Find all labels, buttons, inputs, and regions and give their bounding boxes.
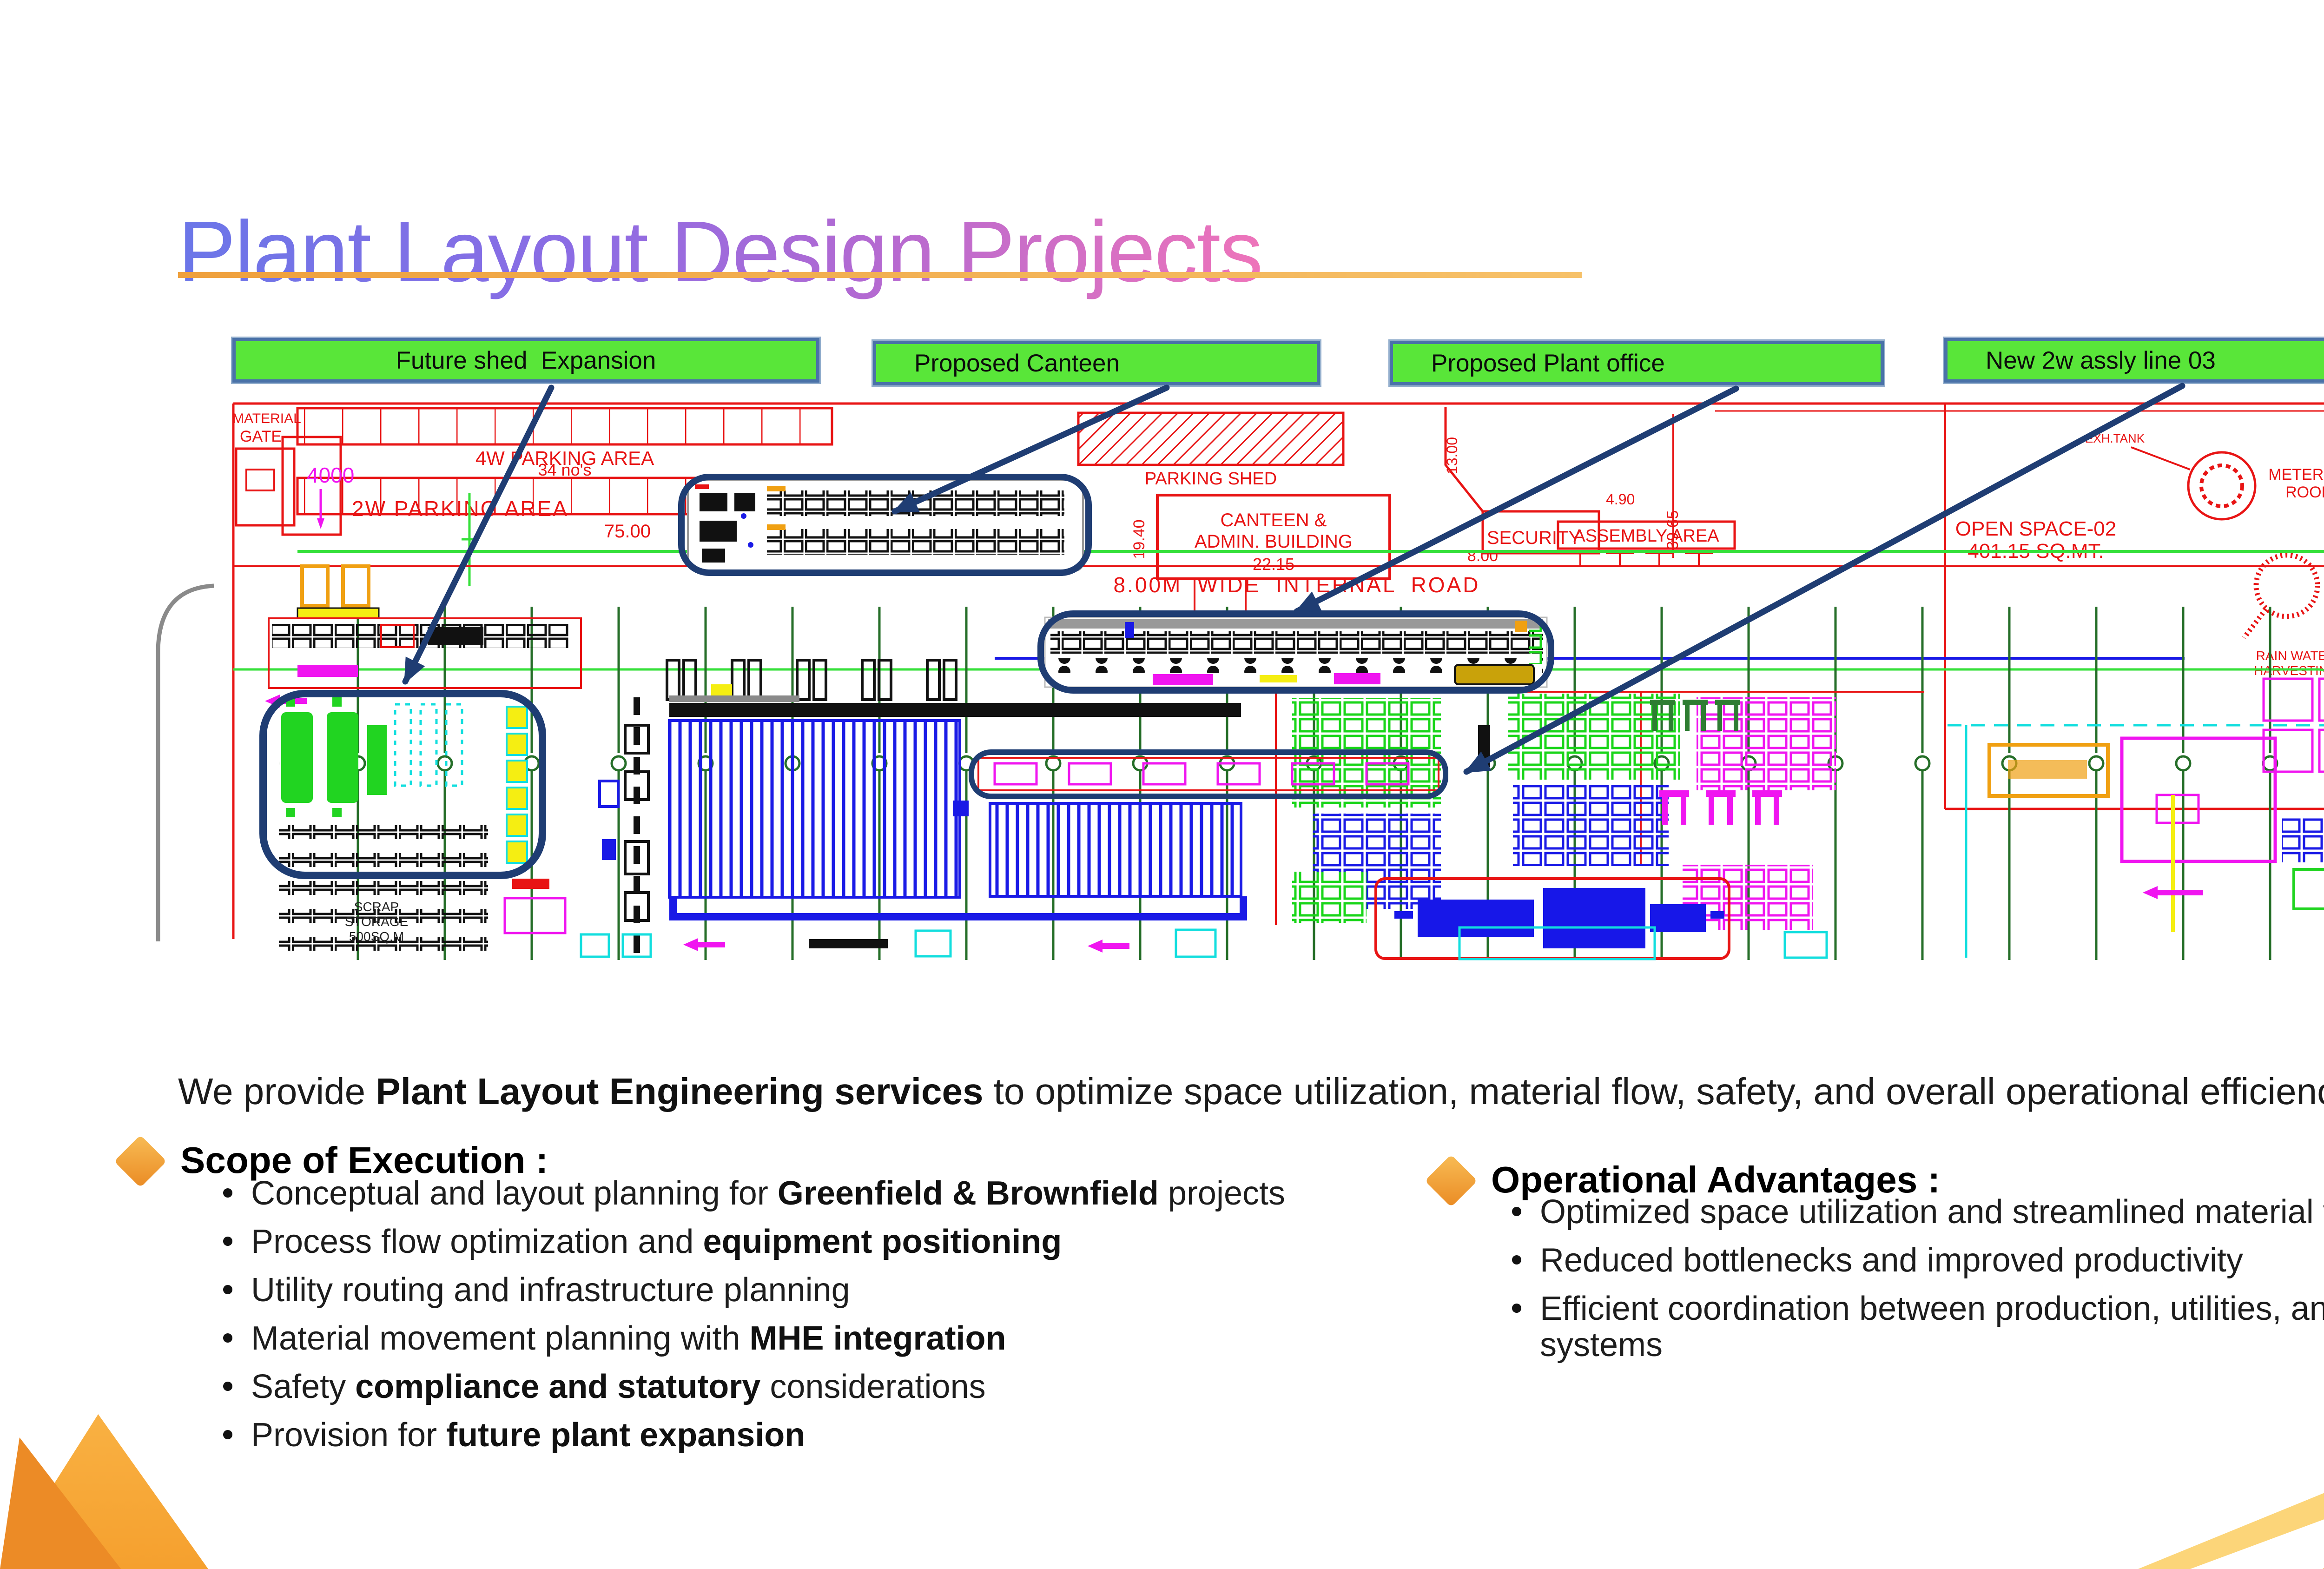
dim-490: 4.90 xyxy=(1606,491,1635,508)
metering-label-1: METERING xyxy=(2268,466,2324,483)
dim-1300: 13.00 xyxy=(1444,437,1460,474)
list-item: Optimized space utilization and streamli… xyxy=(1512,1194,2324,1230)
scrap-label-1: SCRAP xyxy=(354,900,399,914)
bullet-bold: future plant expansion xyxy=(446,1417,805,1454)
callout-proposed-canteen: Proposed Canteen xyxy=(873,341,1320,385)
yellow-bit xyxy=(711,684,732,696)
advantages-bullet-list: Optimized space utilization and streamli… xyxy=(1512,1194,2324,1375)
dim-75: 75.00 xyxy=(604,521,651,542)
intro-bold: Plant Layout Engineering services xyxy=(376,1071,983,1112)
shed-detail xyxy=(688,480,1083,571)
bullet-dot-icon xyxy=(223,1382,232,1391)
bullet-bold: equipment positioning xyxy=(703,1223,1062,1260)
diamond-icon xyxy=(114,1135,166,1187)
dim-2215: 22.15 xyxy=(1253,555,1294,574)
canteen-label-1: CANTEEN & xyxy=(1221,510,1327,530)
list-item: Conceptual and layout planning for Green… xyxy=(223,1175,1534,1212)
bullet-text: Utility routing and infrastructure plann… xyxy=(251,1271,850,1309)
bullet-dot-icon xyxy=(223,1430,232,1439)
line-detail xyxy=(1045,617,1547,687)
list-item: Reduced bottlenecks and improved product… xyxy=(1512,1242,2324,1278)
assembly-label: ASSEMBLY AREA xyxy=(1573,526,1719,546)
bullet-dot-icon xyxy=(223,1285,232,1294)
intro-text: We provide Plant Layout Engineering serv… xyxy=(178,1070,2324,1113)
callout-label: Future shed Expansion xyxy=(396,346,656,375)
bullet-dot-icon xyxy=(223,1237,232,1246)
bullet-bold: MHE integration xyxy=(750,1320,1006,1357)
list-item: Process flow optimization and equipment … xyxy=(223,1224,1534,1260)
bullet-text: Safety xyxy=(251,1368,355,1405)
open-space-label-1: OPEN SPACE-02 xyxy=(1955,517,2116,540)
security-label: SECURITY xyxy=(1487,528,1581,548)
bullet-text: Optimized space utilization and streamli… xyxy=(1540,1194,2324,1230)
page-title: Plant Layout Design Projects xyxy=(178,202,1262,301)
parking-shed: PARKING SHED xyxy=(1078,413,1343,489)
assembly-area: ASSEMBLY AREA xyxy=(1558,522,1735,565)
callout-proposed-plant-office: Proposed Plant office xyxy=(1390,341,1884,385)
list-item: Provision for future plant expansion xyxy=(223,1417,1534,1453)
callout-label: Proposed Plant office xyxy=(1431,349,1665,377)
callout-future-shed: Future shed Expansion xyxy=(232,338,819,383)
dim-4000: 4000 xyxy=(307,463,354,487)
scrap-label-3: 500SQ.M xyxy=(349,929,404,944)
bullet-dot-icon xyxy=(1512,1207,1521,1216)
canteen-building: CANTEEN & ADMIN. BUILDING 19.40 22.15 xyxy=(1130,495,1390,618)
gate-label-1: MATERIAL xyxy=(232,411,301,426)
bullet-text: Material movement planning with xyxy=(251,1320,750,1357)
plant-layout-drawing: 4W PARKING AREA 34 no's 75.00 MATERIAL G… xyxy=(153,400,2324,962)
road-label: 8.00M WIDE INTERNAL ROAD xyxy=(1114,573,1480,597)
list-item: Efficient coordination between productio… xyxy=(1512,1291,2324,1363)
bullet-text: Reduced bottlenecks and improved product… xyxy=(1540,1242,2243,1278)
list-item: Material movement planning with MHE inte… xyxy=(223,1320,1534,1357)
canteen-label-2: ADMIN. BUILDING xyxy=(1195,531,1353,552)
title-underline xyxy=(178,272,1582,278)
parking-2w-label: 2W PARKING AREA xyxy=(352,497,568,521)
bullet-dot-icon xyxy=(1512,1304,1521,1313)
bullet-dot-icon xyxy=(223,1333,232,1343)
corner-decoration-right-light xyxy=(2138,1450,2324,1569)
bullet-text: Provision for xyxy=(251,1417,446,1454)
callout-label: Proposed Canteen xyxy=(914,349,1120,377)
parking-shed-label: PARKING SHED xyxy=(1145,469,1277,489)
dim-800: 8.00 xyxy=(1467,547,1498,565)
bullet-text: considerations xyxy=(760,1368,985,1405)
callout-label: New 2w assly line 03 xyxy=(1986,346,2216,375)
bullet-text: Process flow optimization and xyxy=(251,1223,703,1260)
scrap-label-2: STORAGE xyxy=(345,914,408,929)
bullet-dot-icon xyxy=(223,1188,232,1198)
gate-label-2: GATE xyxy=(240,428,282,445)
bullet-dot-icon xyxy=(1512,1255,1521,1264)
callout-new-2w-assly-line: New 2w assly line 03 xyxy=(1944,338,2324,383)
metering-label-2: ROOM xyxy=(2285,483,2324,501)
list-item: Utility routing and infrastructure plann… xyxy=(223,1272,1534,1308)
intro-pre: We provide xyxy=(178,1071,376,1112)
dim-1940: 19.40 xyxy=(1130,519,1148,559)
scope-bullet-list: Conceptual and layout planning for Green… xyxy=(223,1175,1534,1465)
bullet-bold: Greenfield & Brownfield xyxy=(778,1175,1159,1212)
intro-post: to optimize space utilization, material … xyxy=(983,1071,2324,1112)
exh-tank-label: EXH.TANK xyxy=(2085,431,2145,445)
bullet-text: Conceptual and layout planning for xyxy=(251,1175,778,1212)
parking-4w-count: 34 no's xyxy=(538,460,592,479)
list-item: Safety compliance and statutory consider… xyxy=(223,1369,1534,1405)
bullet-bold: compliance and statutory xyxy=(355,1368,760,1405)
bullet-text: Efficient coordination between productio… xyxy=(1540,1291,2324,1363)
bullet-text: projects xyxy=(1159,1175,1285,1212)
